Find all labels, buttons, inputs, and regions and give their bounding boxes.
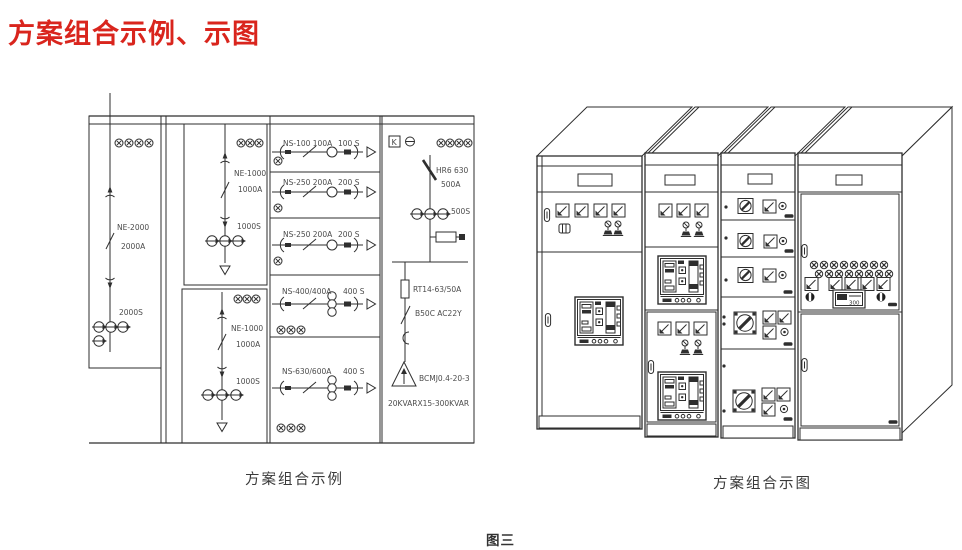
caption-cabinets: 方案组合示图	[713, 472, 812, 493]
figure-label: 图三	[486, 529, 515, 549]
nameplate	[578, 174, 612, 186]
feeder-row-2	[272, 185, 376, 212]
multifunction-meter: 300	[833, 290, 865, 308]
tie-feeder-ne1000-bottom	[201, 292, 260, 432]
label-cap-switch: HR6 630	[436, 166, 469, 175]
feeder-row-4	[272, 292, 376, 334]
label-cap-contactor: B50C AC22Y	[415, 309, 462, 318]
nameplate	[836, 175, 862, 185]
label-sec2bot-model: NE-1000	[231, 324, 263, 333]
label-sec2top-ct: 1000S	[237, 222, 261, 231]
drawer-handle[interactable]	[785, 249, 794, 253]
air-circuit-breaker-face	[658, 256, 706, 304]
cabinet-base	[723, 426, 793, 438]
cabinet-assembly-drawing: 300	[537, 107, 952, 440]
label-sec2bot-current: 1000A	[236, 340, 261, 349]
catalog-page: 方案组合示例、示图	[0, 0, 962, 550]
busbar	[89, 116, 474, 443]
cabinet-roofs	[537, 107, 952, 156]
rotary-switch-icon[interactable]	[738, 199, 753, 214]
single-line-diagram: NE-2000 2000A 2000S NE-1000 1000A 1000S …	[89, 93, 474, 443]
drawout-contact-icon	[106, 186, 115, 201]
label-feeder5-device: NS-630/600A	[282, 367, 332, 376]
pilot-lamp-icon	[806, 293, 815, 302]
contactor-icon	[403, 332, 409, 344]
outgoing-arrow-icon	[220, 266, 230, 275]
cabinet-4: 300	[798, 153, 902, 440]
drawer-handle[interactable]	[784, 417, 793, 421]
rotary-switch-icon[interactable]	[733, 390, 755, 412]
cabinet-1	[537, 156, 642, 429]
label-feeder5-switch: 400 S	[343, 367, 365, 376]
schematic-labels: NE-2000 2000A 2000S NE-1000 1000A 1000S …	[117, 138, 470, 408]
label-k: K	[392, 138, 398, 147]
air-circuit-breaker-face	[658, 372, 706, 420]
meter-row	[805, 278, 890, 291]
label-feeder4-device: NS-400/400A	[282, 287, 332, 296]
cabinet-2	[645, 153, 718, 437]
cabinet-side-panel	[902, 107, 952, 433]
label-sec2top-model: NE-1000	[234, 169, 266, 178]
door-handle[interactable]	[648, 361, 653, 374]
door-handle[interactable]	[802, 359, 807, 372]
air-circuit-breaker-face	[575, 297, 623, 345]
pilot-lamp-icon	[877, 293, 886, 302]
label-feeder1-switch: 100 S	[338, 139, 360, 148]
panel-meter-icon	[556, 204, 569, 217]
label-incoming-current: 2000A	[121, 242, 146, 251]
cabinet-base	[647, 424, 716, 436]
label-feeder1-device: NS-100 100A	[283, 139, 333, 148]
panel-outlines	[89, 116, 474, 443]
drawer-handle[interactable]	[784, 342, 793, 346]
control-knob[interactable]	[559, 224, 570, 233]
cabinet-base	[539, 416, 640, 428]
rotary-switch-icon[interactable]	[738, 234, 753, 249]
caption-schematic: 方案组合示例	[245, 468, 344, 489]
label-cap-bank: 20KVARX15-300KVAR	[388, 399, 469, 408]
door-handle[interactable]	[544, 209, 549, 222]
label-cap-capacitor: BCMJ0.4-20-3	[419, 374, 470, 383]
label-cap-fuse: RT14-63/50A	[413, 285, 462, 294]
door-handle[interactable]	[545, 314, 550, 327]
meter-display-value: 300	[849, 301, 860, 307]
label-cap-current: 500A	[441, 180, 461, 189]
tie-feeder-ne1000-top	[205, 124, 263, 275]
fuse-box-icon	[436, 232, 456, 242]
rotary-switch-icon[interactable]	[738, 268, 753, 283]
drawer-handle[interactable]	[888, 303, 897, 307]
cabinet-base	[800, 428, 900, 440]
feeder-row-5	[272, 376, 376, 432]
door-handle[interactable]	[802, 245, 807, 258]
label-cap-ct: 500S	[451, 207, 470, 216]
feeder-row-1	[272, 145, 376, 165]
drawer-handle[interactable]	[784, 290, 793, 294]
rotary-switch-icon[interactable]	[734, 312, 756, 334]
label-feeder4-switch: 400 S	[343, 287, 365, 296]
feeder-row-3	[272, 238, 376, 265]
label-sec2top-current: 1000A	[238, 185, 263, 194]
drawer-handle[interactable]	[785, 214, 794, 218]
fuse-icon	[401, 280, 409, 298]
drawer-handle[interactable]	[889, 420, 898, 424]
nameplate	[665, 175, 695, 185]
label-feeder2-switch: 200 S	[338, 178, 360, 187]
label-feeder3-switch: 200 S	[338, 230, 360, 239]
cabinet-3	[721, 153, 795, 438]
meter-icon	[115, 139, 123, 147]
label-incoming-ct: 2000S	[119, 308, 143, 317]
diagram-canvas: NE-2000 2000A 2000S NE-1000 1000A 1000S …	[0, 0, 962, 550]
nameplate	[748, 174, 772, 184]
label-feeder3-device: NS-250 200A	[283, 230, 333, 239]
label-incoming-model: NE-2000	[117, 223, 149, 232]
label-feeder2-device: NS-250 200A	[283, 178, 333, 187]
label-sec2bot-ct: 1000S	[236, 377, 260, 386]
